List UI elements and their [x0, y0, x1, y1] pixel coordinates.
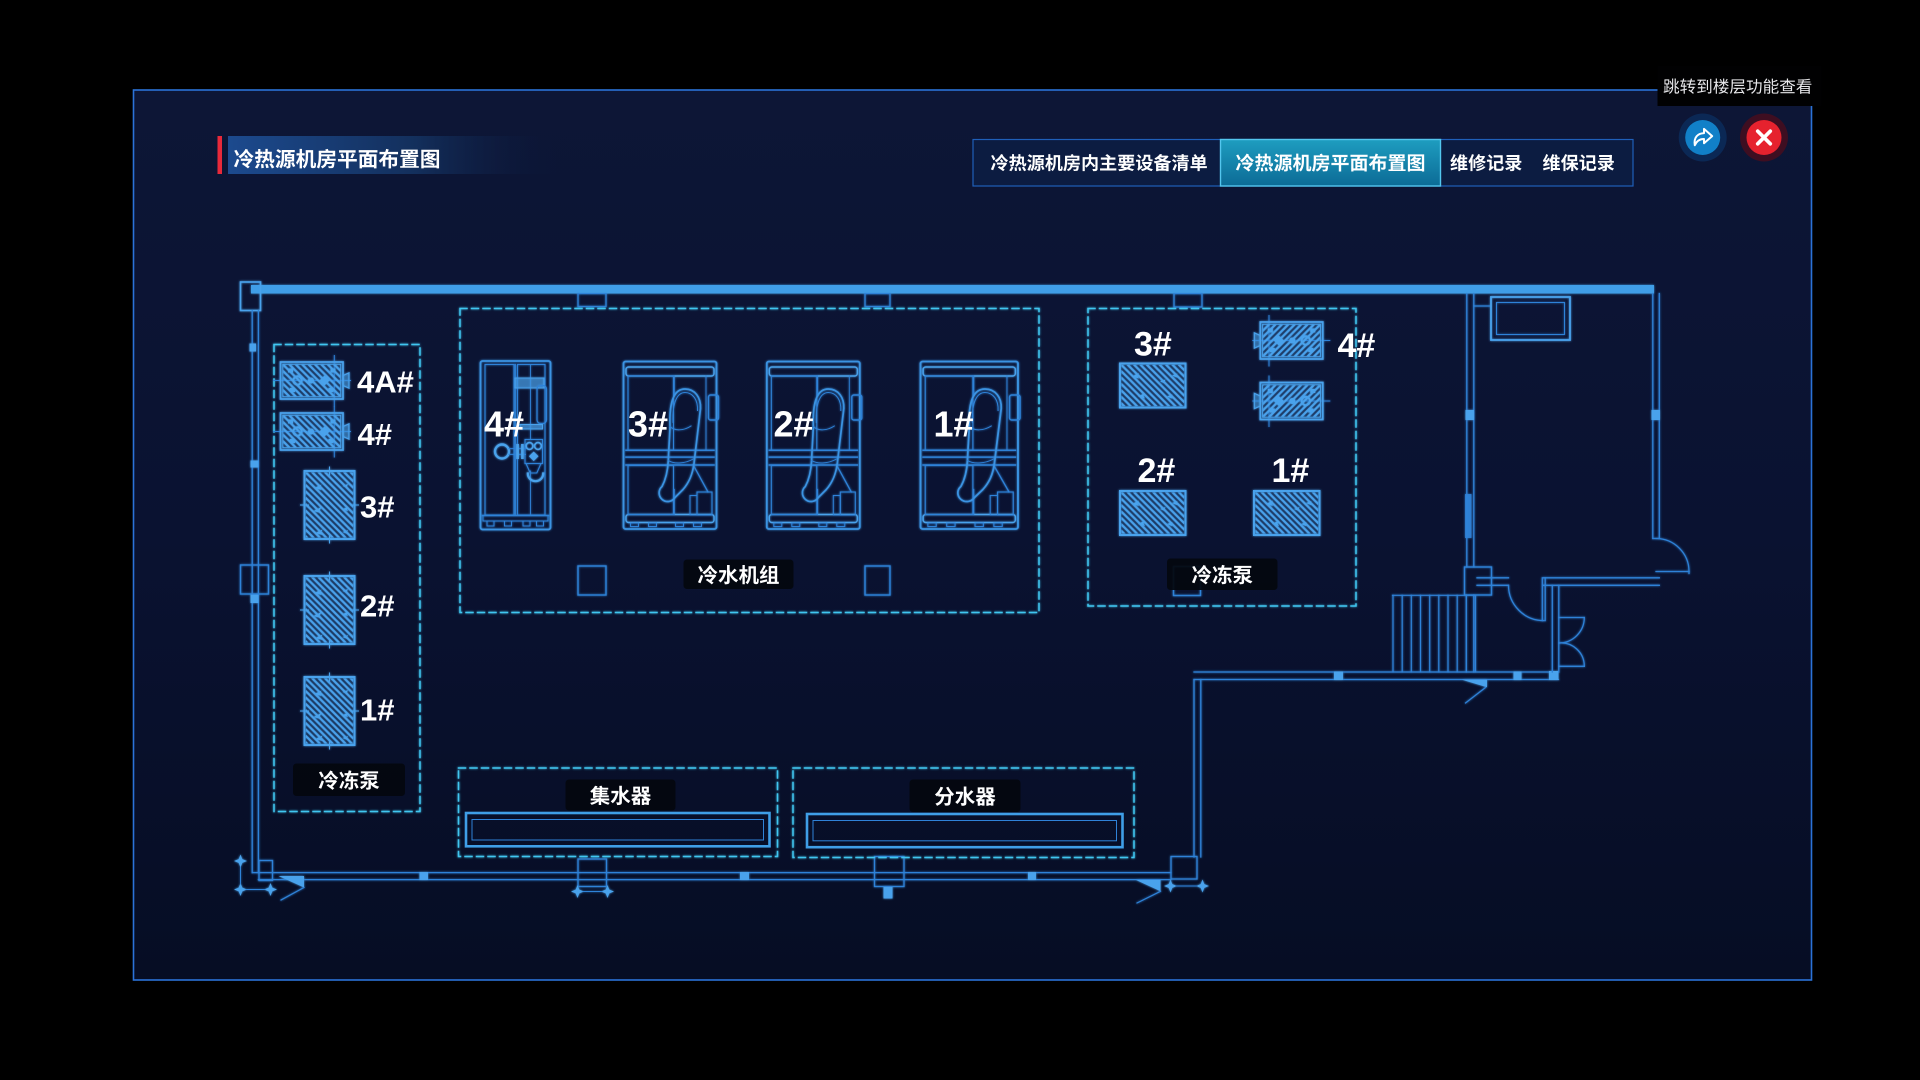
svg-text:2#: 2# — [1138, 452, 1176, 490]
svg-text:2#: 2# — [774, 404, 814, 445]
svg-text:4#: 4# — [484, 404, 524, 445]
svg-text:3#: 3# — [1134, 326, 1172, 364]
svg-text:4#: 4# — [358, 417, 392, 452]
svg-text:2#: 2# — [360, 589, 394, 624]
svg-text:1#: 1# — [1272, 452, 1310, 490]
svg-text:1#: 1# — [934, 404, 974, 445]
svg-text:4A#: 4A# — [357, 365, 414, 400]
svg-text:1#: 1# — [360, 693, 394, 728]
svg-text:3#: 3# — [628, 404, 668, 445]
svg-text:4#: 4# — [1338, 327, 1376, 365]
svg-text:3#: 3# — [360, 490, 394, 525]
